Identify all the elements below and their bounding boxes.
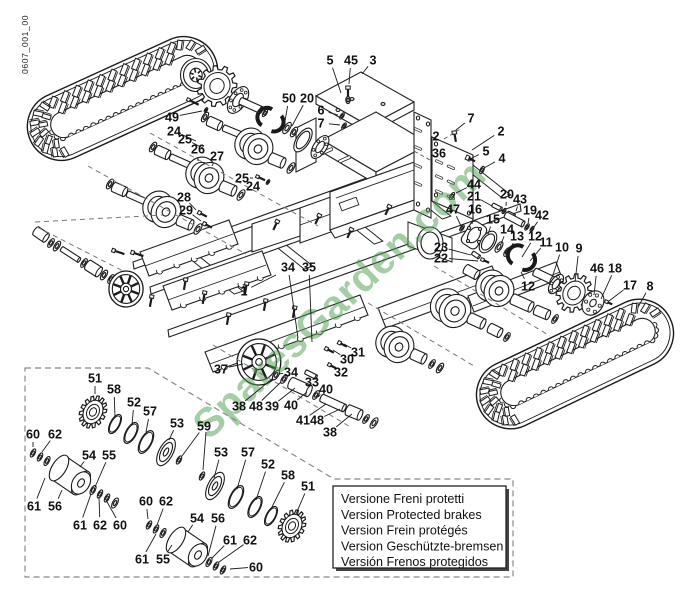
svg-text:61: 61 — [27, 500, 41, 514]
svg-text:20: 20 — [300, 92, 314, 106]
svg-text:41: 41 — [296, 414, 310, 428]
svg-text:52: 52 — [261, 458, 275, 472]
svg-text:33: 33 — [305, 376, 319, 390]
svg-text:10: 10 — [555, 241, 569, 255]
svg-text:45: 45 — [344, 54, 358, 68]
svg-text:20: 20 — [500, 188, 514, 202]
svg-text:9: 9 — [575, 242, 582, 256]
svg-text:Version Geschützte-bremsen: Version Geschützte-bremsen — [341, 539, 503, 553]
svg-text:7: 7 — [467, 112, 474, 126]
svg-text:57: 57 — [241, 446, 255, 460]
svg-text:56: 56 — [48, 500, 62, 514]
svg-text:13: 13 — [510, 230, 524, 244]
svg-text:31: 31 — [351, 346, 365, 360]
svg-text:61: 61 — [223, 534, 237, 548]
svg-text:56: 56 — [211, 512, 225, 526]
svg-text:8: 8 — [646, 280, 653, 294]
svg-text:47: 47 — [446, 203, 460, 217]
svg-text:39: 39 — [265, 400, 279, 414]
svg-text:29: 29 — [179, 204, 193, 218]
svg-text:0607_001_00: 0607_001_00 — [20, 15, 30, 74]
svg-text:40: 40 — [284, 399, 298, 413]
svg-text:35: 35 — [302, 261, 316, 275]
svg-text:2: 2 — [432, 130, 439, 144]
svg-text:62: 62 — [48, 428, 62, 442]
svg-text:55: 55 — [102, 449, 116, 463]
svg-text:40: 40 — [319, 383, 333, 397]
svg-text:60: 60 — [26, 428, 40, 442]
svg-text:62: 62 — [243, 534, 257, 548]
svg-text:60: 60 — [249, 561, 263, 575]
svg-text:15: 15 — [486, 213, 500, 227]
svg-text:6: 6 — [317, 104, 324, 118]
svg-text:25: 25 — [178, 133, 192, 147]
svg-text:28: 28 — [177, 191, 191, 205]
svg-text:38: 38 — [323, 426, 337, 440]
svg-text:53: 53 — [170, 417, 184, 431]
svg-text:Versione Freni protetti: Versione Freni protetti — [341, 492, 464, 506]
svg-text:61: 61 — [73, 519, 87, 533]
svg-text:59: 59 — [197, 420, 211, 434]
svg-text:54: 54 — [190, 512, 204, 526]
svg-text:50: 50 — [282, 92, 296, 106]
svg-text:5: 5 — [326, 54, 333, 68]
svg-text:26: 26 — [191, 143, 205, 157]
svg-text:58: 58 — [281, 469, 295, 483]
svg-text:4: 4 — [498, 152, 505, 166]
svg-text:24: 24 — [246, 180, 260, 194]
svg-text:7: 7 — [317, 117, 324, 131]
svg-text:3: 3 — [369, 54, 376, 68]
svg-text:42: 42 — [535, 209, 549, 223]
svg-text:5: 5 — [482, 145, 489, 159]
svg-text:60: 60 — [139, 495, 153, 509]
svg-text:57: 57 — [143, 405, 157, 419]
svg-text:55: 55 — [156, 553, 170, 567]
svg-text:62: 62 — [159, 495, 173, 509]
svg-text:51: 51 — [301, 480, 315, 494]
svg-text:61: 61 — [135, 553, 149, 567]
svg-text:51: 51 — [88, 372, 102, 386]
svg-text:Versión Frenos protegidos: Versión Frenos protegidos — [341, 555, 488, 569]
svg-text:62: 62 — [93, 519, 107, 533]
svg-text:58: 58 — [107, 383, 121, 397]
svg-text:38: 38 — [232, 400, 246, 414]
svg-text:46: 46 — [590, 262, 604, 276]
svg-text:12: 12 — [521, 280, 535, 294]
svg-text:37: 37 — [214, 363, 228, 377]
svg-text:34: 34 — [284, 366, 298, 380]
svg-text:48: 48 — [310, 414, 324, 428]
svg-text:54: 54 — [82, 449, 96, 463]
svg-text:11: 11 — [539, 236, 552, 250]
svg-text:60: 60 — [113, 519, 127, 533]
svg-text:36: 36 — [432, 147, 446, 161]
svg-text:22: 22 — [434, 252, 448, 266]
svg-text:52: 52 — [127, 396, 141, 410]
svg-text:Version Protected brakes: Version Protected brakes — [341, 508, 482, 522]
svg-text:49: 49 — [165, 111, 179, 125]
svg-text:53: 53 — [214, 446, 228, 460]
svg-text:17: 17 — [623, 279, 637, 293]
svg-text:1: 1 — [240, 285, 247, 299]
svg-text:Version Frein protégés: Version Frein protégés — [341, 524, 468, 538]
svg-text:32: 32 — [334, 366, 348, 380]
svg-text:34: 34 — [281, 261, 295, 275]
svg-text:16: 16 — [468, 203, 482, 217]
svg-text:2: 2 — [497, 125, 504, 139]
svg-text:21: 21 — [467, 190, 481, 204]
svg-text:18: 18 — [608, 262, 622, 276]
svg-text:27: 27 — [210, 150, 224, 164]
svg-text:48: 48 — [249, 400, 263, 414]
